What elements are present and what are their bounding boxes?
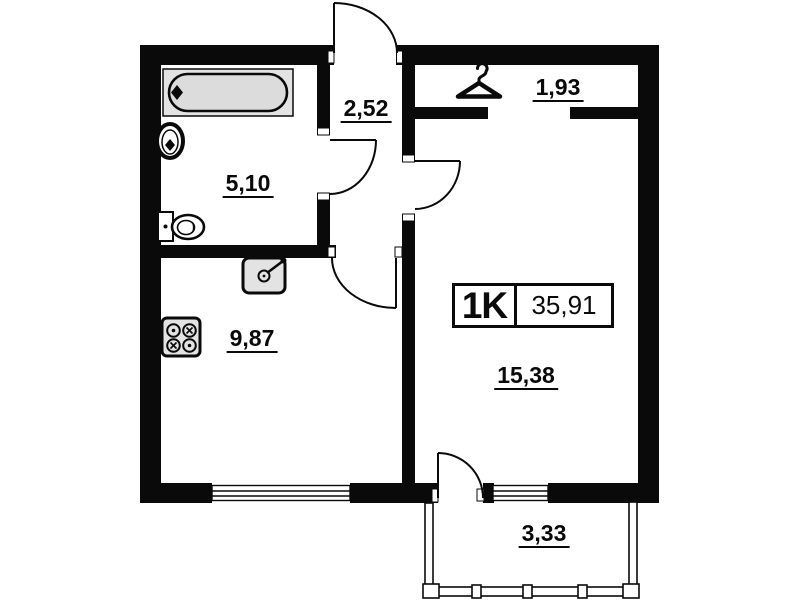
living-room-door	[415, 161, 460, 209]
balcony-post-right	[623, 584, 639, 598]
kitchen-sink-icon	[243, 258, 287, 294]
bathtub-icon	[163, 69, 293, 116]
kitchen-door	[332, 258, 396, 308]
jamb-bathroom-top	[318, 128, 330, 135]
wall-right	[638, 45, 659, 502]
balcony-post-left	[423, 584, 439, 598]
balcony-post-mid3	[578, 585, 587, 598]
jamb-kitchen-right	[395, 247, 402, 257]
entrance-door	[334, 3, 397, 53]
wall-wardrobe-right	[570, 107, 638, 119]
balcony-structure	[423, 502, 639, 598]
bathroom-door	[330, 140, 376, 194]
stove-icon	[162, 318, 200, 356]
wall-wardrobe-left	[415, 107, 488, 119]
wall-left	[140, 45, 161, 503]
wall-bottom-2	[350, 483, 438, 503]
living-window	[493, 486, 548, 501]
balcony-wall-left	[425, 503, 433, 587]
jamb-bathroom-bottom	[318, 193, 330, 200]
balcony-wall-right	[629, 502, 637, 587]
entrance-door-arc	[334, 3, 397, 53]
toilet-icon	[158, 212, 204, 241]
jamb-living-top	[403, 155, 415, 162]
balcony-door	[438, 453, 483, 498]
jamb-living-bottom	[403, 214, 415, 221]
washbasin-icon	[157, 124, 183, 158]
bathroom-area-label: 5,10	[223, 171, 274, 198]
wall-top-left	[140, 45, 334, 65]
balcony-area-label: 3,33	[519, 521, 570, 548]
living-room-door-arc	[415, 161, 460, 209]
jamb-kitchen-left	[328, 247, 335, 257]
wardrobe-area-label: 1,93	[533, 75, 584, 102]
wall-bottom-1	[140, 483, 212, 503]
balcony-post-mid1	[472, 585, 481, 598]
hanger-icon	[458, 64, 500, 97]
balcony-post-mid2	[523, 585, 532, 598]
kitchen-door-arc	[332, 258, 396, 308]
wall-top-right	[396, 45, 659, 65]
unit-total-area: 35,91	[517, 286, 611, 325]
kitchen-faucet	[281, 258, 287, 264]
kitchen-window	[212, 486, 350, 501]
balcony-door-arc	[438, 453, 483, 498]
floor-plan-drawing	[0, 0, 799, 600]
unit-info-box: 1K 35,91	[452, 283, 614, 328]
wall-hall-living-upper	[402, 45, 415, 162]
kitchen-area-label: 9,87	[227, 326, 278, 353]
wall-bathroom-bottom	[140, 245, 336, 258]
bathroom-door-arc	[330, 140, 376, 194]
living-room-area-label: 15,38	[494, 363, 558, 390]
floor-plan: 5,10 2,52 1,93 9,87 15,38 3,33 1K 35,91	[0, 0, 799, 600]
wall-bottom-4	[548, 483, 659, 503]
hallway-area-label: 2,52	[341, 96, 392, 123]
wall-kitchen-living	[402, 214, 415, 483]
unit-type-label: 1K	[455, 286, 517, 325]
